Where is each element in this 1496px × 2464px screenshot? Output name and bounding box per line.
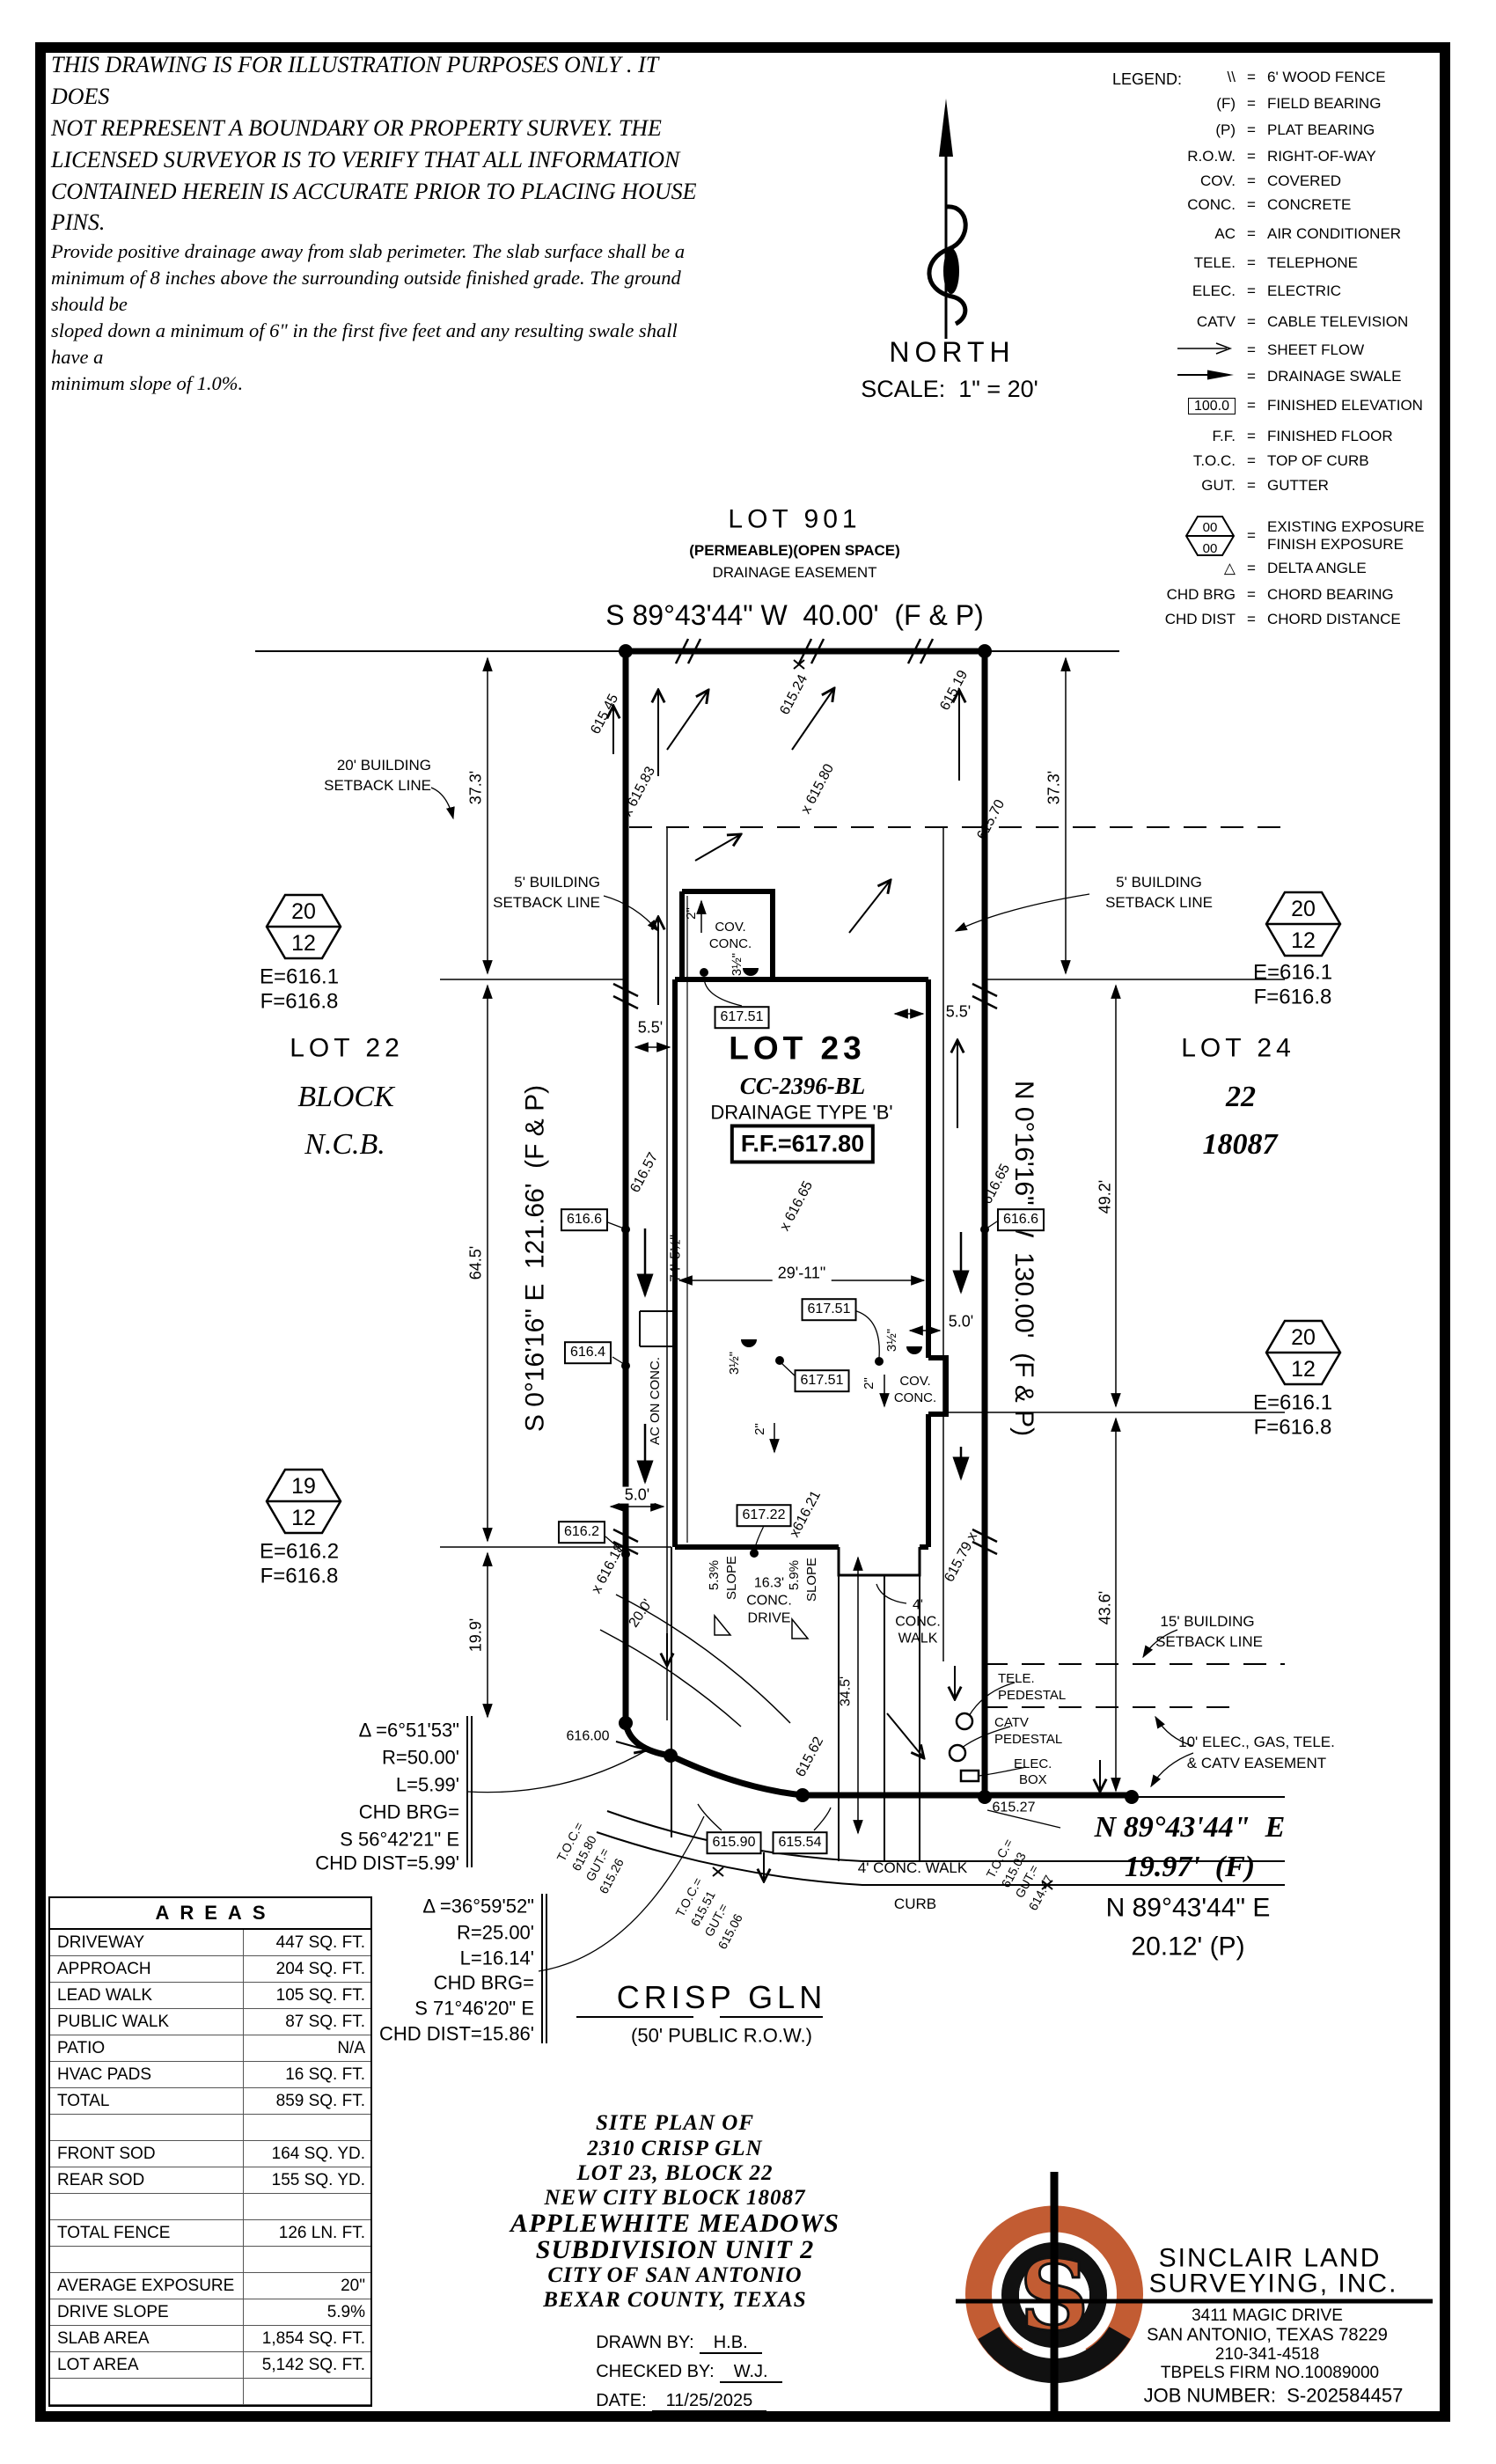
- legend-equals: =: [1236, 477, 1267, 495]
- legend-label: SHEET FLOW: [1267, 341, 1364, 359]
- tele-pedestal-symbol: [957, 1713, 972, 1729]
- plat-label: 12: [1291, 929, 1316, 952]
- title-block-line: LOT 23, BLOCK 22: [577, 2161, 774, 2186]
- plat-label: 15' BUILDING: [1160, 1614, 1254, 1630]
- plat-label: R=25.00': [457, 1922, 534, 1942]
- plat-label: R=50.00': [382, 1747, 459, 1767]
- date-value: 11/25/2025: [652, 2391, 767, 2412]
- plat-label: 3½": [885, 1329, 899, 1352]
- legend-symbol-text: ELEC.: [1105, 282, 1236, 300]
- legend-row: AC=AIR CONDITIONER: [1105, 225, 1484, 243]
- areas-row-value: 155 SQ. YD.: [243, 2167, 370, 2193]
- legend-equals: =: [1236, 121, 1267, 139]
- entry-stoop: [839, 1547, 920, 1575]
- areas-table-row: DRIVEWAY447 SQ. FT.: [50, 1930, 370, 1956]
- legend-equals: =: [1236, 313, 1267, 331]
- plat-label: S 56°42'21" E: [340, 1829, 459, 1849]
- plat-label: F=616.8: [1254, 1416, 1332, 1438]
- areas-table-row: REAR SOD155 SQ. YD.: [50, 2167, 370, 2194]
- areas-row-value: [243, 2194, 370, 2219]
- plat-label: BOX: [1019, 1773, 1047, 1787]
- areas-row-label: [50, 2115, 243, 2140]
- plat-label: 10' ELEC., GAS, TELE.: [1178, 1734, 1335, 1750]
- plat-label: 616.2: [558, 1521, 605, 1544]
- south-bearing-field: N 89°43'44" E: [1095, 1812, 1286, 1844]
- plat-label: 29'-11": [773, 1265, 832, 1282]
- areas-table-row: LOT AREA5,142 SQ. FT.: [50, 2352, 370, 2379]
- legend-symbol-text: △: [1105, 560, 1236, 577]
- plat-label: 37.3': [1046, 771, 1063, 804]
- legend-label: AIR CONDITIONER: [1267, 225, 1401, 243]
- plat-label: (PERMEABLE)(OPEN SPACE): [689, 543, 900, 559]
- plat-label: 5.5': [638, 1020, 663, 1037]
- legend-label: CABLE TELEVISION: [1267, 313, 1408, 331]
- plat-label: 617.51: [802, 1298, 857, 1321]
- legend-symbol-text: CATV: [1105, 313, 1236, 331]
- areas-table-title: AREAS: [50, 1898, 370, 1930]
- title-block-line: APPLEWHITE MEADOWS: [510, 2209, 840, 2239]
- areas-table-row: APPROACH204 SQ. FT.: [50, 1956, 370, 1983]
- plat-label: 20: [1291, 1326, 1316, 1349]
- plat-label: SLOPE: [725, 1556, 739, 1600]
- areas-row-value: 859 SQ. FT.: [243, 2088, 370, 2114]
- boundary-corner-dots: [619, 644, 1139, 1804]
- legend-row: =DRAINAGE SWALE: [1105, 368, 1484, 385]
- areas-row-label: REAR SOD: [50, 2167, 243, 2193]
- legend-symbol-text: T.O.C.: [1105, 452, 1236, 470]
- areas-row-value: [243, 2115, 370, 2140]
- plat-label: CHD BRG=: [434, 1972, 534, 1992]
- areas-row-value: 16 SQ. FT.: [243, 2062, 370, 2087]
- legend-label: CONCRETE: [1267, 196, 1351, 214]
- legend-label: DELTA ANGLE: [1267, 560, 1367, 577]
- legend-row: TELE.=TELEPHONE: [1105, 254, 1484, 272]
- plat-label: 19.97' (F): [1125, 1852, 1255, 1883]
- legend-symbol-text: F.F.: [1105, 428, 1236, 445]
- legend-row: CHD BRG=CHORD BEARING: [1105, 586, 1484, 604]
- legend-equals: =: [1236, 282, 1267, 300]
- plat-label: ELEC.: [1014, 1757, 1052, 1771]
- plat-label: 20' BUILDING: [337, 758, 431, 774]
- plat-label: SETBACK LINE: [493, 895, 600, 911]
- areas-row-label: [50, 2379, 243, 2404]
- legend-equals: =: [1236, 428, 1267, 445]
- exposure-existing: 20: [291, 900, 316, 923]
- elec-box-symbol: [961, 1771, 979, 1781]
- legend-symbol-text: COV.: [1105, 172, 1236, 190]
- plat-label: CHD BRG=: [359, 1801, 459, 1822]
- plat-label: COV.: [899, 1375, 930, 1389]
- disclaimer-line: LICENSED SURVEYOR IS TO VERIFY THAT ALL …: [51, 144, 711, 176]
- areas-table-row: [50, 2379, 370, 2405]
- areas-row-value: 164 SQ. YD.: [243, 2141, 370, 2167]
- areas-row-value: N/A: [243, 2035, 370, 2061]
- legend-symbol-hex: 0000: [1105, 514, 1236, 558]
- title-block-line: CITY OF SAN ANTONIO: [547, 2263, 802, 2288]
- legend-symbol-text: CONC.: [1105, 196, 1236, 214]
- plat-label: E=616.1: [1253, 1391, 1332, 1413]
- plat-label: CURB: [894, 1896, 936, 1912]
- drainage-note-line: minimum slope of 1.0%.: [51, 370, 711, 397]
- legend-label: TELEPHONE: [1267, 254, 1358, 272]
- drainage-note-line: sloped down a minimum of 6" in the first…: [51, 318, 711, 370]
- plat-label: 49.2': [1097, 1180, 1114, 1214]
- plat-label: 5.9%: [788, 1560, 802, 1590]
- plat-label: COV.: [715, 920, 745, 935]
- firm-address: 3411 MAGIC DRIVE: [1192, 2307, 1343, 2325]
- areas-table-row: [50, 2194, 370, 2220]
- plat-label: DRIVE: [748, 1612, 791, 1627]
- plat-label: 3½": [730, 953, 744, 976]
- areas-table-row: LEAD WALK105 SQ. FT.: [50, 1983, 370, 2009]
- plat-label: F=616.8: [1254, 986, 1332, 1008]
- legend-label: PLAT BEARING: [1267, 121, 1375, 139]
- plat-label: E=616.1: [1253, 961, 1332, 983]
- legend-equals: =: [1236, 586, 1267, 604]
- areas-table-row: AVERAGE EXPOSURE20": [50, 2273, 370, 2299]
- date-label: DATE:: [596, 2391, 646, 2410]
- plat-label: CONC.: [709, 937, 752, 951]
- legend-equals: =: [1236, 69, 1267, 86]
- areas-row-label: LEAD WALK: [50, 1983, 243, 2008]
- legend-label: ELECTRIC: [1267, 282, 1341, 300]
- firm-phone: 210-341-4518: [1215, 2346, 1319, 2364]
- plat-label: CONC.: [895, 1616, 941, 1631]
- legend-row: CHD DIST=CHORD DISTANCE: [1105, 611, 1484, 628]
- plat-label: SLOPE: [805, 1558, 819, 1602]
- areas-row-value: 5.9%: [243, 2299, 370, 2325]
- plat-label: 5.3%: [708, 1560, 722, 1590]
- plat-label: SETBACK LINE: [1105, 895, 1213, 911]
- plat-label: 18087: [1203, 1129, 1278, 1161]
- areas-table-row: HVAC PADS16 SQ. FT.: [50, 2062, 370, 2088]
- plat-label: SETBACK LINE: [324, 778, 431, 794]
- plat-label: 2": [685, 907, 699, 920]
- plat-label: 64.5': [468, 1246, 485, 1280]
- exposure-finish: 12: [291, 932, 316, 955]
- legend-equals: =: [1236, 560, 1267, 577]
- legend-label: CHORD DISTANCE: [1267, 611, 1401, 628]
- plat-label: WALK: [898, 1632, 938, 1647]
- areas-row-label: LOT AREA: [50, 2352, 243, 2378]
- plat-label: AC ON CONC.: [649, 1357, 663, 1445]
- plat-label: E=616.1: [260, 965, 339, 987]
- x-marks: [713, 660, 1052, 1889]
- plat-label: 22: [1226, 1082, 1256, 1113]
- legend-row: GUT.=GUTTER: [1105, 477, 1484, 495]
- areas-row-label: SLAB AREA: [50, 2326, 243, 2351]
- lot-901-label: LOT 901: [728, 505, 861, 533]
- site-plan-sheet: S THIS DRAWING IS FOR ILLUSTRATION PURPO…: [0, 0, 1496, 2464]
- areas-table-row: TOTAL FENCE126 LN. FT.: [50, 2220, 370, 2247]
- areas-row-value: 105 SQ. FT.: [243, 1983, 370, 2008]
- plat-label: 37.3': [468, 771, 485, 804]
- plat-label: 617.22: [737, 1504, 792, 1527]
- legend-symbol-text: (F): [1105, 95, 1236, 113]
- title-block-line: SITE PLAN OF: [596, 2111, 754, 2136]
- plat-label: 19: [291, 1475, 316, 1498]
- areas-table-row: [50, 2115, 370, 2141]
- plat-label: 74'-5½": [670, 1235, 685, 1282]
- plat-label: 34.5': [840, 1676, 854, 1706]
- legend-label: FINISHED FLOOR: [1267, 428, 1393, 445]
- plat-label: SETBACK LINE: [1155, 1634, 1263, 1650]
- legend-equals: =: [1236, 148, 1267, 165]
- areas-row-label: AVERAGE EXPOSURE: [50, 2273, 243, 2299]
- legend-equals: =: [1236, 95, 1267, 113]
- plat-label: CONC.: [894, 1391, 936, 1405]
- firm-tbpels: TBPELS FIRM NO.10089000: [1161, 2365, 1379, 2382]
- svg-text:00: 00: [1203, 541, 1218, 556]
- legend-equals: =: [1236, 452, 1267, 470]
- legend-label: DRAINAGE SWALE: [1267, 368, 1401, 385]
- legend-row: 0000=EXISTING EXPOSUREFINISH EXPOSURE: [1105, 514, 1484, 558]
- legend-label: 6' WOOD FENCE: [1267, 69, 1386, 86]
- legend-row: \\=6' WOOD FENCE: [1105, 69, 1484, 86]
- legend-symbol-text: R.O.W.: [1105, 148, 1236, 165]
- plat-label: CATV: [994, 1716, 1029, 1730]
- legend-equals: =: [1236, 172, 1267, 190]
- title-block-line: NEW CITY BLOCK 18087: [544, 2186, 805, 2211]
- south-bearing-plat: N 89°43'44" E: [1106, 1894, 1271, 1922]
- catv-pedestal-symbol: [950, 1745, 965, 1761]
- legend-symbol-arrow: [1105, 341, 1236, 359]
- plat-label: 5.0': [620, 1487, 655, 1504]
- plat-label: 615.90: [707, 1831, 762, 1854]
- areas-table-row: TOTAL859 SQ. FT.: [50, 2088, 370, 2115]
- ac-pad: [640, 1311, 675, 1346]
- date-field: DATE:11/25/2025: [576, 2371, 766, 2431]
- plat-label: 616.6: [997, 1208, 1045, 1231]
- legend-symbol-text: \\: [1105, 69, 1236, 86]
- title-block-line: 2310 CRISP GLN: [587, 2137, 762, 2161]
- north-boundary-bearing: S 89°43'44" W 40.00' (F & P): [605, 601, 983, 631]
- areas-row-label: PATIO: [50, 2035, 243, 2061]
- plat-label: CONC.: [746, 1595, 792, 1610]
- legend-row: CONC.=CONCRETE: [1105, 196, 1484, 214]
- plat-label: 12: [1291, 1358, 1316, 1381]
- plat-label: E=616.2: [260, 1540, 339, 1562]
- areas-row-label: DRIVEWAY: [50, 1930, 243, 1955]
- plat-label: 16.3': [754, 1577, 784, 1592]
- house-top-porch: [682, 891, 773, 979]
- legend-symbol-text: (P): [1105, 121, 1236, 139]
- areas-row-value: 204 SQ. FT.: [243, 1956, 370, 1982]
- disclaimer-line: NOT REPRESENT A BOUNDARY OR PROPERTY SUR…: [51, 113, 711, 144]
- plat-label: BLOCK: [297, 1082, 394, 1113]
- plat-label: N.C.B.: [304, 1129, 385, 1161]
- legend-equals: =: [1236, 527, 1267, 545]
- legend-label: RIGHT-OF-WAY: [1267, 148, 1376, 165]
- areas-row-label: TOTAL: [50, 2088, 243, 2114]
- plat-label: 5' BUILDING: [514, 875, 600, 891]
- plat-label: PEDESTAL: [998, 1689, 1066, 1703]
- firm-address: SAN ANTONIO, TEXAS 78229: [1147, 2327, 1388, 2345]
- legend-row: =SHEET FLOW: [1105, 341, 1484, 359]
- plat-label: 2": [862, 1377, 876, 1390]
- plat-label: S 71°46'20" E: [414, 1998, 534, 2018]
- plat-label: DRAINAGE TYPE 'B': [710, 1102, 892, 1122]
- plat-label: F=616.8: [260, 1565, 339, 1587]
- plat-label: DRAINAGE EASEMENT: [712, 565, 876, 581]
- legend-row: △=DELTA ANGLE: [1105, 560, 1484, 577]
- plat-label: 4' CONC. WALK: [858, 1860, 967, 1876]
- legend-label: FIELD BEARING: [1267, 95, 1381, 113]
- areas-row-label: HVAC PADS: [50, 2062, 243, 2087]
- street-name: CRISP GLN: [617, 1981, 826, 2014]
- legend-symbol-text: TELE.: [1105, 254, 1236, 272]
- curve1-delta: Δ =6°51'53": [359, 1720, 459, 1740]
- plat-label: 617.51: [795, 1369, 850, 1392]
- plat-label: CHD DIST=5.99': [315, 1852, 459, 1873]
- legend-row: (F)=FIELD BEARING: [1105, 95, 1484, 113]
- plat-label: 616.00: [567, 1730, 610, 1745]
- legend-row: CATV=CABLE TELEVISION: [1105, 313, 1484, 331]
- legend-row: T.O.C.=TOP OF CURB: [1105, 452, 1484, 470]
- plat-label: 5.0': [949, 1314, 973, 1331]
- legend-label: TOP OF CURB: [1267, 452, 1369, 470]
- plat-label: 19.9': [468, 1618, 485, 1652]
- areas-table-row: SLAB AREA1,854 SQ. FT.: [50, 2326, 370, 2352]
- areas-row-value: 126 LN. FT.: [243, 2220, 370, 2246]
- legend-label: CHORD BEARING: [1267, 586, 1394, 604]
- plat-label: 12: [291, 1507, 316, 1529]
- areas-table-row: PUBLIC WALK87 SQ. FT.: [50, 2009, 370, 2035]
- legend-row: F.F.=FINISHED FLOOR: [1105, 428, 1484, 445]
- plat-label: CC-2396-BL: [740, 1074, 866, 1098]
- legend-row: COV.=COVERED: [1105, 172, 1484, 190]
- drainage-note-line: minimum of 8 inches above the surroundin…: [51, 265, 711, 318]
- plat-label: & CATV EASEMENT: [1187, 1756, 1326, 1771]
- plat-label: 20: [1291, 898, 1316, 920]
- disclaimer-line: CONTAINED HEREIN IS ACCURATE PRIOR TO PL…: [51, 176, 711, 239]
- legend-label: EXISTING EXPOSUREFINISH EXPOSURE: [1267, 518, 1425, 554]
- job-number: JOB NUMBER: S-202584457: [1144, 2385, 1404, 2405]
- areas-row-value: 1,854 SQ. FT.: [243, 2326, 370, 2351]
- plat-label: 5.5': [946, 1004, 971, 1021]
- areas-row-label: DRIVE SLOPE: [50, 2299, 243, 2325]
- legend-symbol-text: CHD BRG: [1105, 586, 1236, 604]
- legend-row: R.O.W.=RIGHT-OF-WAY: [1105, 148, 1484, 165]
- areas-row-label: [50, 2194, 243, 2219]
- areas-row-value: 87 SQ. FT.: [243, 2009, 370, 2035]
- disclaimer-note: THIS DRAWING IS FOR ILLUSTRATION PURPOSE…: [51, 49, 711, 397]
- legend-label: GUTTER: [1267, 477, 1329, 495]
- legend-equals: =: [1236, 341, 1267, 359]
- plat-label: 43.6': [1097, 1591, 1114, 1624]
- legend-row: ELEC.=ELECTRIC: [1105, 282, 1484, 300]
- east-boundary-bearing: N 0°16'16" W 130.00' (F & P): [1009, 1081, 1038, 1436]
- lot-23-label: LOT 23: [729, 1032, 865, 1067]
- areas-row-value: [243, 2247, 370, 2272]
- plat-label: 615.54: [773, 1831, 828, 1854]
- areas-table: AREAS DRIVEWAY447 SQ. FT.APPROACH204 SQ.…: [48, 1896, 372, 2407]
- finished-floor-elevation: F.F.=617.80: [730, 1124, 875, 1163]
- curve2-delta: Δ =36°59'52": [422, 1896, 534, 1916]
- exposure-hexagons: [267, 892, 1340, 1533]
- plat-label: 616.4: [564, 1341, 612, 1364]
- plat-label: 20.12' (P): [1131, 1932, 1244, 1961]
- legend-symbol-text: AC: [1105, 225, 1236, 243]
- legend-symbol-swale: [1105, 368, 1236, 385]
- lot-24-label: LOT 24: [1181, 1034, 1295, 1062]
- title-block-line: BEXAR COUNTY, TEXAS: [543, 2288, 806, 2313]
- plat-label: (50' PUBLIC R.O.W.): [631, 2025, 812, 2045]
- north-arrow-icon: [929, 99, 965, 339]
- plat-label: 3½": [728, 1352, 742, 1375]
- plat-label: 616.6: [561, 1208, 608, 1231]
- plat-label: 2": [753, 1423, 767, 1435]
- areas-row-label: [50, 2247, 243, 2272]
- drainage-note-line: Provide positive drainage away from slab…: [51, 238, 711, 265]
- plat-label: L=16.14': [460, 1947, 534, 1968]
- west-boundary-bearing: S 0°16'16" E 121.66' (F & P): [521, 1085, 549, 1432]
- plat-label: L=5.99': [396, 1774, 459, 1794]
- legend-label: FINISHED ELEVATION: [1267, 397, 1423, 414]
- north-label: NORTH: [889, 338, 1015, 368]
- disclaimer-line: THIS DRAWING IS FOR ILLUSTRATION PURPOSE…: [51, 49, 711, 113]
- plat-label: 617.51: [715, 1006, 770, 1029]
- areas-row-value: [243, 2379, 370, 2404]
- plat-label: 5' BUILDING: [1116, 875, 1202, 891]
- plat-label: PEDESTAL: [994, 1733, 1062, 1747]
- areas-row-label: FRONT SOD: [50, 2141, 243, 2167]
- legend-symbol-text: GUT.: [1105, 477, 1236, 495]
- legend-equals: =: [1236, 196, 1267, 214]
- areas-table-row: PATION/A: [50, 2035, 370, 2062]
- areas-table-row: [50, 2247, 370, 2273]
- title-block-line: SUBDIVISION UNIT 2: [536, 2235, 814, 2265]
- legend-equals: =: [1236, 225, 1267, 243]
- areas-row-value: 20": [243, 2273, 370, 2299]
- svg-text:00: 00: [1203, 520, 1218, 535]
- legend-equals: =: [1236, 611, 1267, 628]
- plat-label: F=616.8: [260, 990, 339, 1012]
- scale-label: SCALE: 1" = 20': [861, 377, 1038, 401]
- firm-name: SURVEYING, INC.: [1149, 2270, 1398, 2298]
- areas-row-label: TOTAL FENCE: [50, 2220, 243, 2246]
- legend-equals: =: [1236, 397, 1267, 414]
- plat-label: TELE.: [998, 1672, 1035, 1686]
- plat-label: 615.27: [993, 1801, 1036, 1816]
- areas-row-label: PUBLIC WALK: [50, 2009, 243, 2035]
- firm-name: SINCLAIR LAND: [1159, 2244, 1382, 2272]
- legend-symbol-box: 100.0: [1105, 397, 1236, 414]
- areas-table-row: FRONT SOD164 SQ. YD.: [50, 2141, 370, 2167]
- legend-row: 100.0=FINISHED ELEVATION: [1105, 397, 1484, 414]
- areas-row-value: 447 SQ. FT.: [243, 1930, 370, 1955]
- areas-row-label: APPROACH: [50, 1956, 243, 1982]
- legend-row: (P)=PLAT BEARING: [1105, 121, 1484, 139]
- plat-label: 4': [913, 1599, 923, 1614]
- legend-label: COVERED: [1267, 172, 1341, 190]
- legend-symbol-text: CHD DIST: [1105, 611, 1236, 628]
- plat-label: CHD DIST=15.86': [379, 2023, 534, 2043]
- legend-equals: =: [1236, 368, 1267, 385]
- areas-table-row: DRIVE SLOPE5.9%: [50, 2299, 370, 2326]
- lot-22-label: LOT 22: [290, 1034, 404, 1062]
- areas-row-value: 5,142 SQ. FT.: [243, 2352, 370, 2378]
- legend-equals: =: [1236, 254, 1267, 272]
